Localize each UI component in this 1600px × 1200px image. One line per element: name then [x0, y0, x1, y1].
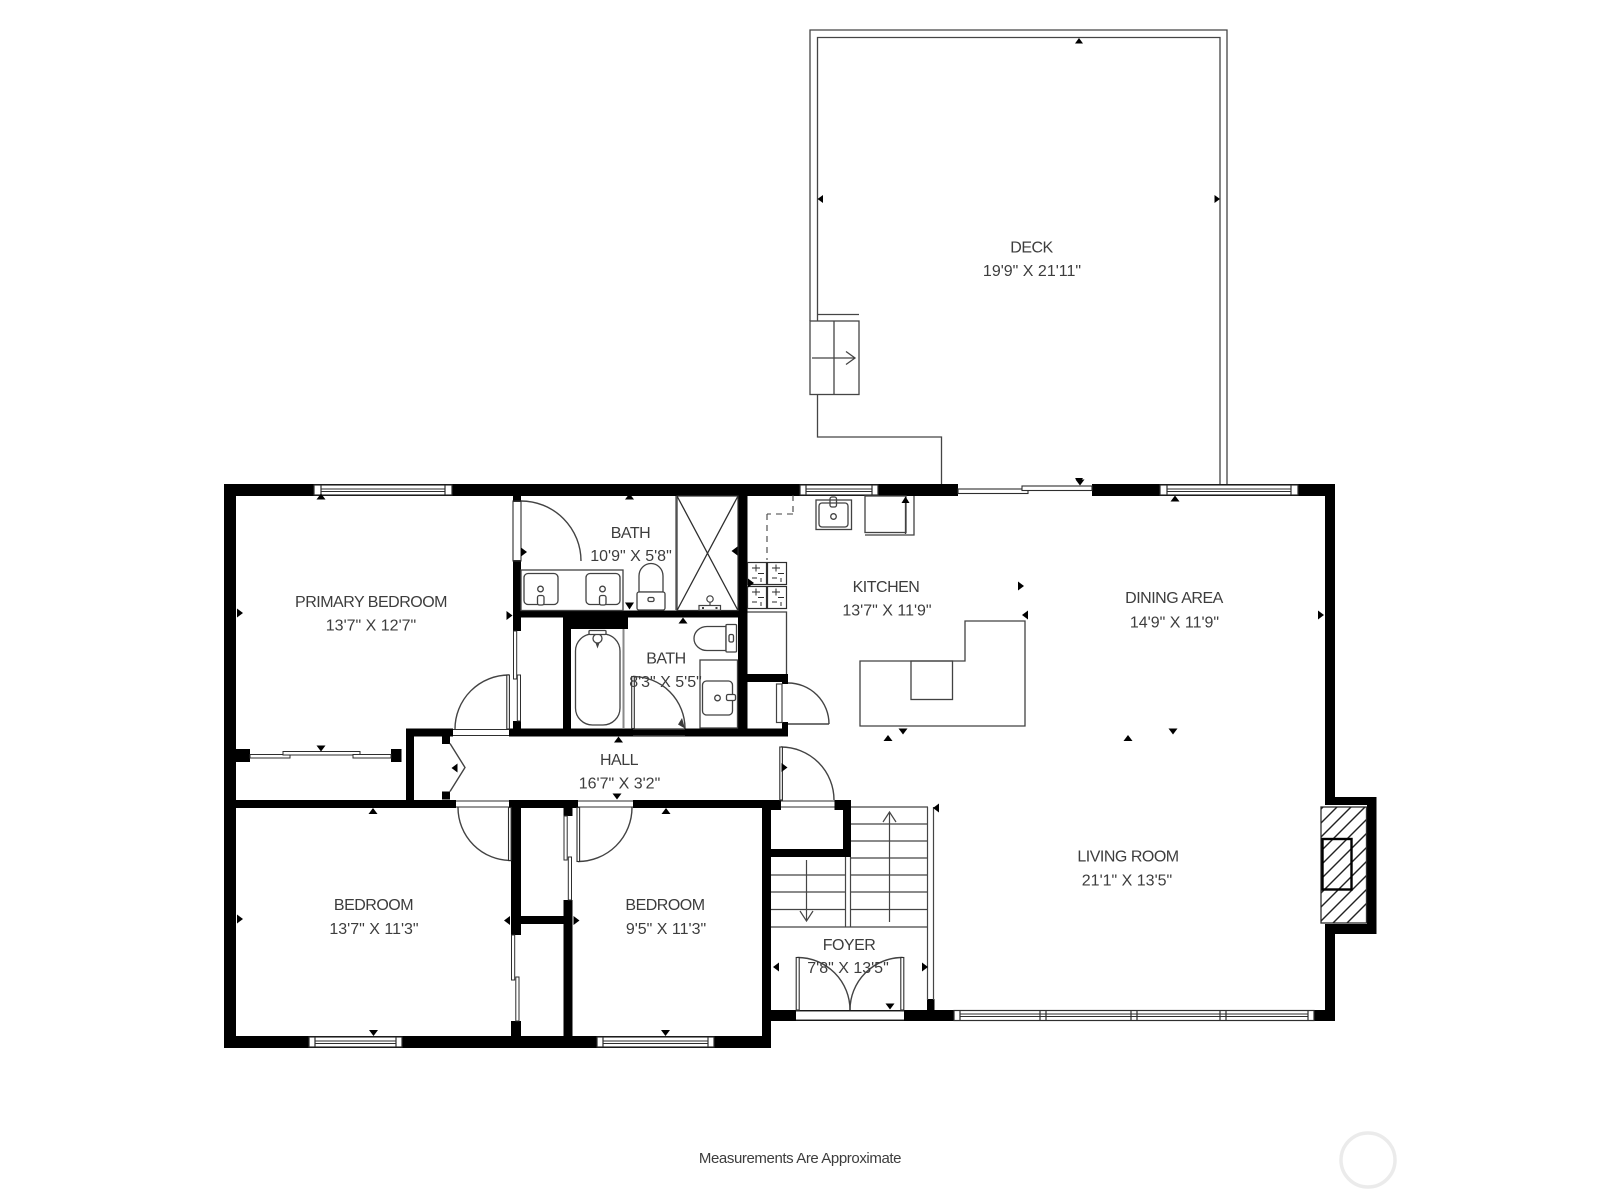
svg-text:DINING AREA: DINING AREA: [1125, 590, 1223, 607]
svg-text:LIVING ROOM: LIVING ROOM: [1077, 849, 1178, 866]
svg-text:FOYER: FOYER: [823, 937, 876, 954]
svg-text:8'3" X 5'5": 8'3" X 5'5": [629, 674, 702, 691]
svg-text:Measurements Are Approximate: Measurements Are Approximate: [699, 1150, 901, 1167]
svg-text:DECK: DECK: [1010, 240, 1053, 257]
svg-text:21'1" X 13'5": 21'1" X 13'5": [1082, 873, 1172, 890]
svg-text:10'9" X 5'8": 10'9" X 5'8": [590, 548, 672, 565]
svg-text:BEDROOM: BEDROOM: [334, 897, 413, 914]
svg-text:13'7" X 11'3": 13'7" X 11'3": [329, 921, 418, 938]
svg-text:7'8" X 13'5": 7'8" X 13'5": [807, 960, 889, 977]
svg-text:16'7" X 3'2": 16'7" X 3'2": [579, 776, 661, 793]
svg-text:PRIMARY BEDROOM: PRIMARY BEDROOM: [295, 594, 447, 611]
svg-text:BEDROOM: BEDROOM: [625, 897, 704, 914]
svg-text:13'7" X 12'7": 13'7" X 12'7": [326, 618, 416, 635]
svg-text:KITCHEN: KITCHEN: [853, 579, 920, 596]
svg-text:9'5" X 11'3": 9'5" X 11'3": [626, 921, 706, 938]
svg-text:HALL: HALL: [600, 752, 639, 769]
svg-text:BATH: BATH: [611, 525, 650, 542]
svg-text:14'9" X 11'9": 14'9" X 11'9": [1130, 615, 1219, 632]
svg-text:19'9" X 21'11": 19'9" X 21'11": [983, 263, 1081, 280]
svg-text:13'7" X 11'9": 13'7" X 11'9": [842, 603, 931, 620]
svg-text:BATH: BATH: [646, 651, 685, 668]
